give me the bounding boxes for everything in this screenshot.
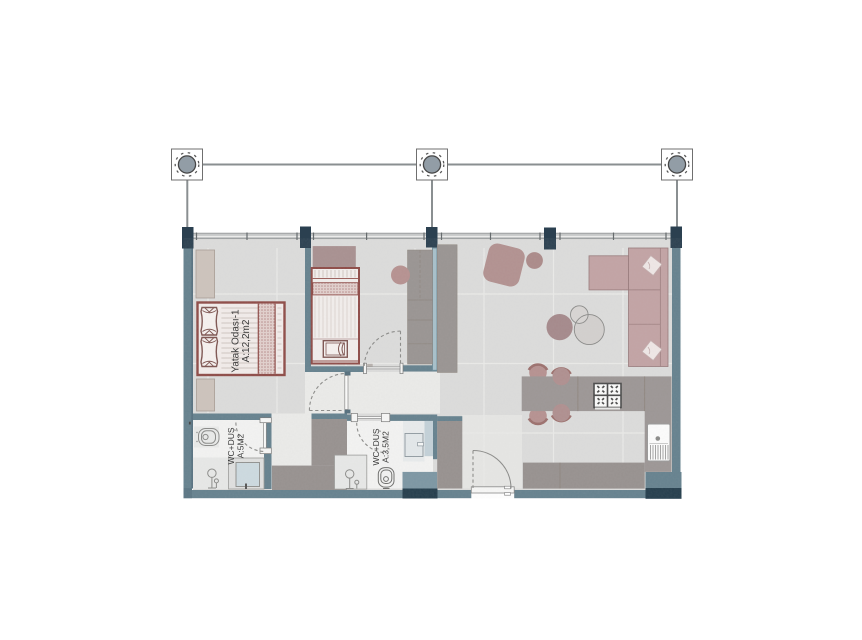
svg-text:WC+DUŞ: WC+DUŞ [371,428,381,465]
svg-text:A:12,2m2: A:12,2m2 [241,319,252,362]
svg-text:A:5M2: A:5M2 [236,433,246,458]
svg-text:WC+DUŞ: WC+DUŞ [226,427,236,464]
svg-text:Yatak Odası-1: Yatak Odası-1 [231,309,242,373]
svg-text:A:3,5M2: A:3,5M2 [381,431,391,463]
